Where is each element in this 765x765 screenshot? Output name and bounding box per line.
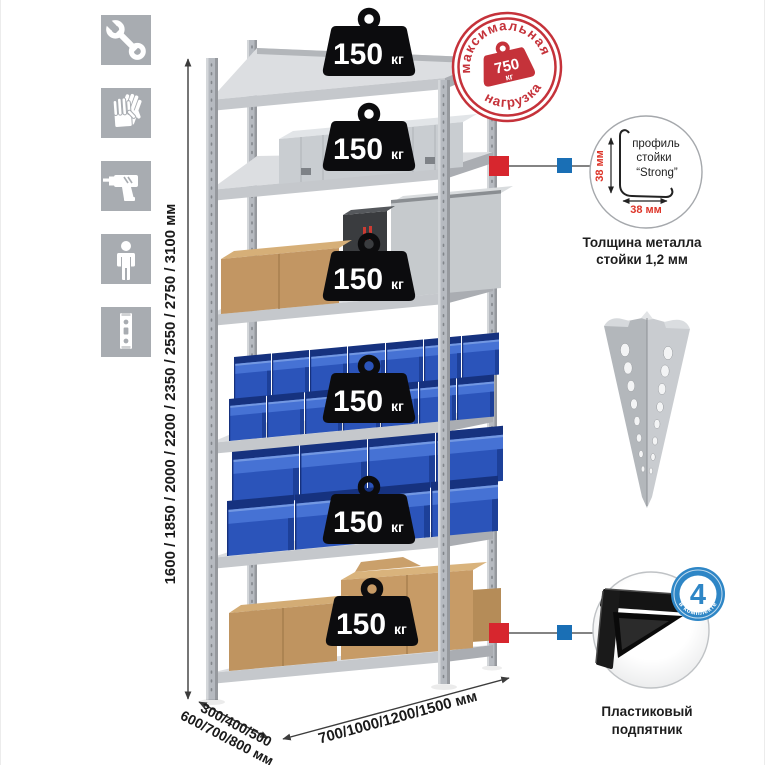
front-right-post (438, 80, 450, 684)
load-unit: кг (391, 276, 404, 292)
foot-callout-connector (489, 623, 598, 643)
storage-bin (234, 354, 271, 400)
storage-bin (272, 350, 309, 396)
load-unit: кг (394, 621, 407, 637)
plastic-foot-circle: 4 в комплекте (593, 567, 725, 688)
profile-label-line2: стойки (636, 152, 671, 164)
thickness-caption-line2: стойки 1,2 мм (596, 252, 688, 267)
width-options-label: 700/1000/1200/1500 мм (316, 688, 479, 748)
load-unit: кг (391, 398, 404, 414)
front-left-post (206, 58, 218, 700)
blue-connector-square (557, 625, 572, 640)
load-value: 150 (336, 608, 386, 641)
depth-dimension: 300/400/500 600/700/800 мм (178, 693, 284, 765)
load-unit: кг (391, 51, 404, 67)
assembly-icons (101, 15, 151, 357)
height-dimension: 1600 / 1850 / 2000 / 2200 / 2350 / 2550 … (162, 59, 188, 699)
profile-callout-connector (489, 156, 601, 176)
load-value: 150 (333, 263, 383, 296)
storage-bin (462, 333, 499, 379)
storage-bin (229, 396, 266, 442)
load-value: 150 (333, 385, 383, 418)
rack-post-icon (101, 307, 151, 357)
load-value: 150 (333, 506, 383, 539)
wrench-icon (101, 15, 151, 65)
diagram-canvas: 1600 / 1850 / 2000 / 2200 / 2350 / 2550 … (1, 0, 765, 765)
thickness-caption-line1: Толщина металла (582, 235, 702, 250)
width-dimension: 700/1000/1200/1500 мм (283, 678, 509, 747)
load-unit: кг (391, 519, 404, 535)
red-connector-square (489, 156, 509, 176)
profile-dim-horizontal: 38 мм (630, 204, 662, 216)
drill-icon (101, 161, 151, 211)
load-value: 150 (333, 133, 383, 166)
profile-dim-vertical: 38 мм (594, 150, 606, 182)
blue-connector-square (557, 158, 572, 173)
height-options-label: 1600 / 1850 / 2000 / 2200 / 2350 / 2550 … (162, 204, 179, 585)
steel-angle-post (604, 311, 690, 508)
weight-badge: 150 кг (323, 11, 415, 76)
max-load-stamp: максимальная нагрузка 750 кг (442, 2, 572, 132)
storage-bin (227, 495, 294, 556)
load-value: 150 (333, 38, 383, 71)
storage-bin (419, 378, 456, 424)
profile-label-line1: профиль (632, 138, 680, 150)
weight-badge: 150 кг (323, 106, 415, 171)
kit-count-badge: 4 в комплекте (671, 567, 725, 621)
load-unit: кг (391, 146, 404, 162)
person-icon (101, 234, 151, 284)
product-diagram: 1600 / 1850 / 2000 / 2200 / 2350 / 2550 … (0, 0, 765, 765)
profile-label-line3: “Strong” (636, 167, 678, 179)
foot-caption-line1: Пластиковый (601, 704, 692, 719)
storage-bin (457, 375, 494, 421)
post-profile-circle: 38 мм 38 мм профиль стойки “Strong” (590, 116, 702, 228)
foot-caption-line2: подпятник (612, 722, 683, 737)
kit-count: 4 (690, 579, 706, 611)
rear-left-post (247, 40, 257, 664)
storage-bin (267, 392, 304, 438)
work-gloves-icon (101, 88, 151, 138)
red-connector-square (489, 623, 509, 643)
